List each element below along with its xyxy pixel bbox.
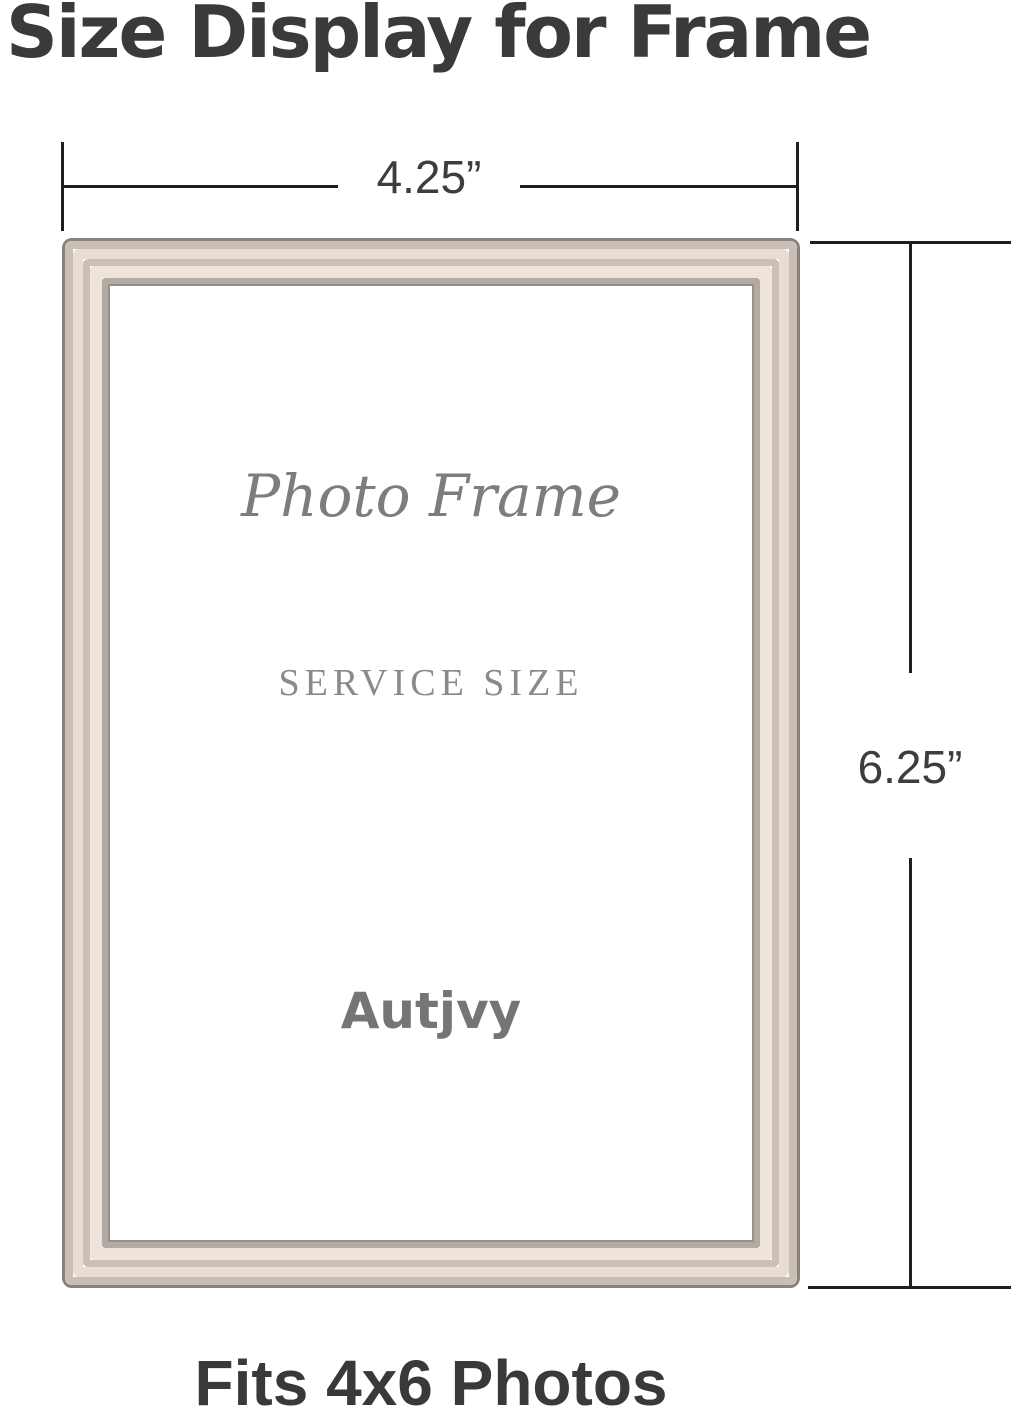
brand-text: Autjvy	[110, 986, 752, 1036]
frame-moulding-band	[90, 266, 772, 1260]
frame-moulding-band	[73, 249, 789, 1277]
frame-moulding-outer-edge	[62, 238, 800, 1288]
height-dim-label: 6.25”	[818, 740, 1002, 795]
width-dim-label: 4.25”	[338, 150, 520, 205]
height-dim-tick-bottom	[808, 1286, 1011, 1289]
photo-frame	[62, 238, 800, 1288]
frame-moulding-band	[102, 278, 760, 1248]
height-dim-line-bottom	[909, 858, 912, 1289]
width-dim-tick-right	[796, 142, 799, 231]
frame-moulding-band	[65, 241, 797, 1285]
photo-frame-script-text: Photo Frame	[110, 462, 752, 532]
height-dim-line-top	[909, 241, 912, 673]
width-dim-line-left	[61, 185, 338, 188]
service-size-text: SERVICE SIZE	[110, 664, 752, 702]
page-title: Size Display for Frame	[6, 0, 870, 74]
frame-interior	[108, 284, 754, 1242]
frame-moulding-band	[83, 259, 779, 1267]
width-dim-line-right	[520, 185, 799, 188]
fits-caption: Fits 4x6 Photos	[62, 1348, 800, 1417]
size-display-diagram: Size Display for Frame 4.25” 6.25”	[0, 0, 1013, 1417]
